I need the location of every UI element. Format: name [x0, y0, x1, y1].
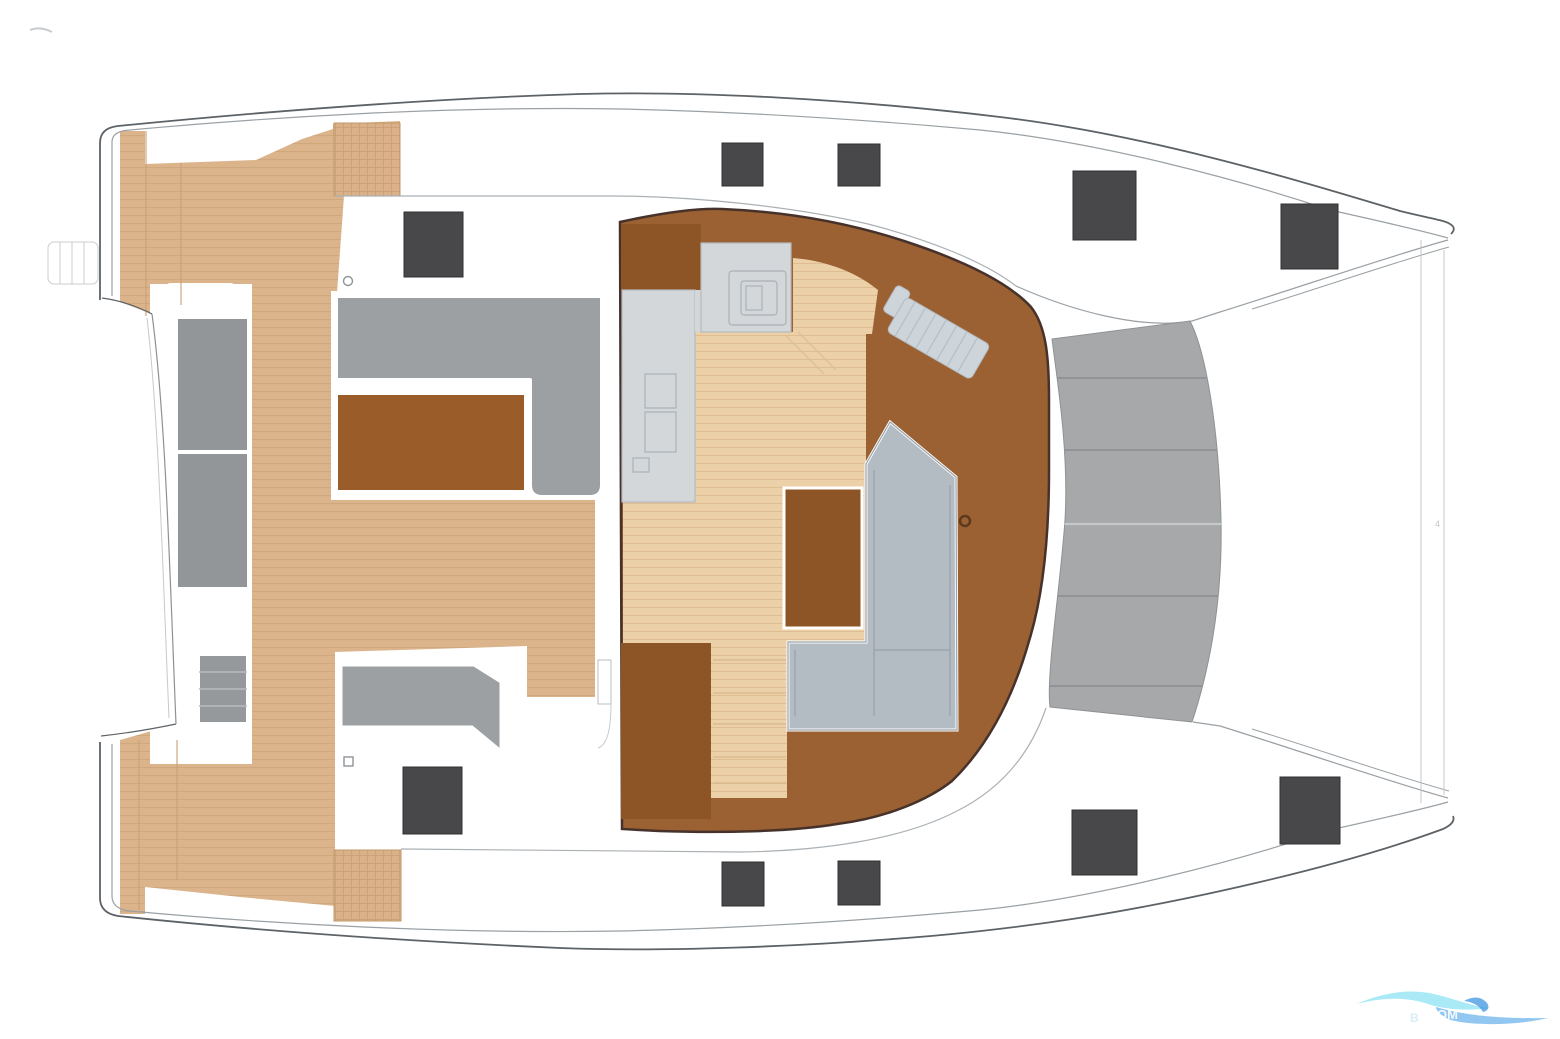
svg-text:B: B [1410, 1011, 1419, 1025]
svg-text:OM: OM [1437, 1007, 1458, 1022]
svg-text:4: 4 [1435, 519, 1440, 529]
